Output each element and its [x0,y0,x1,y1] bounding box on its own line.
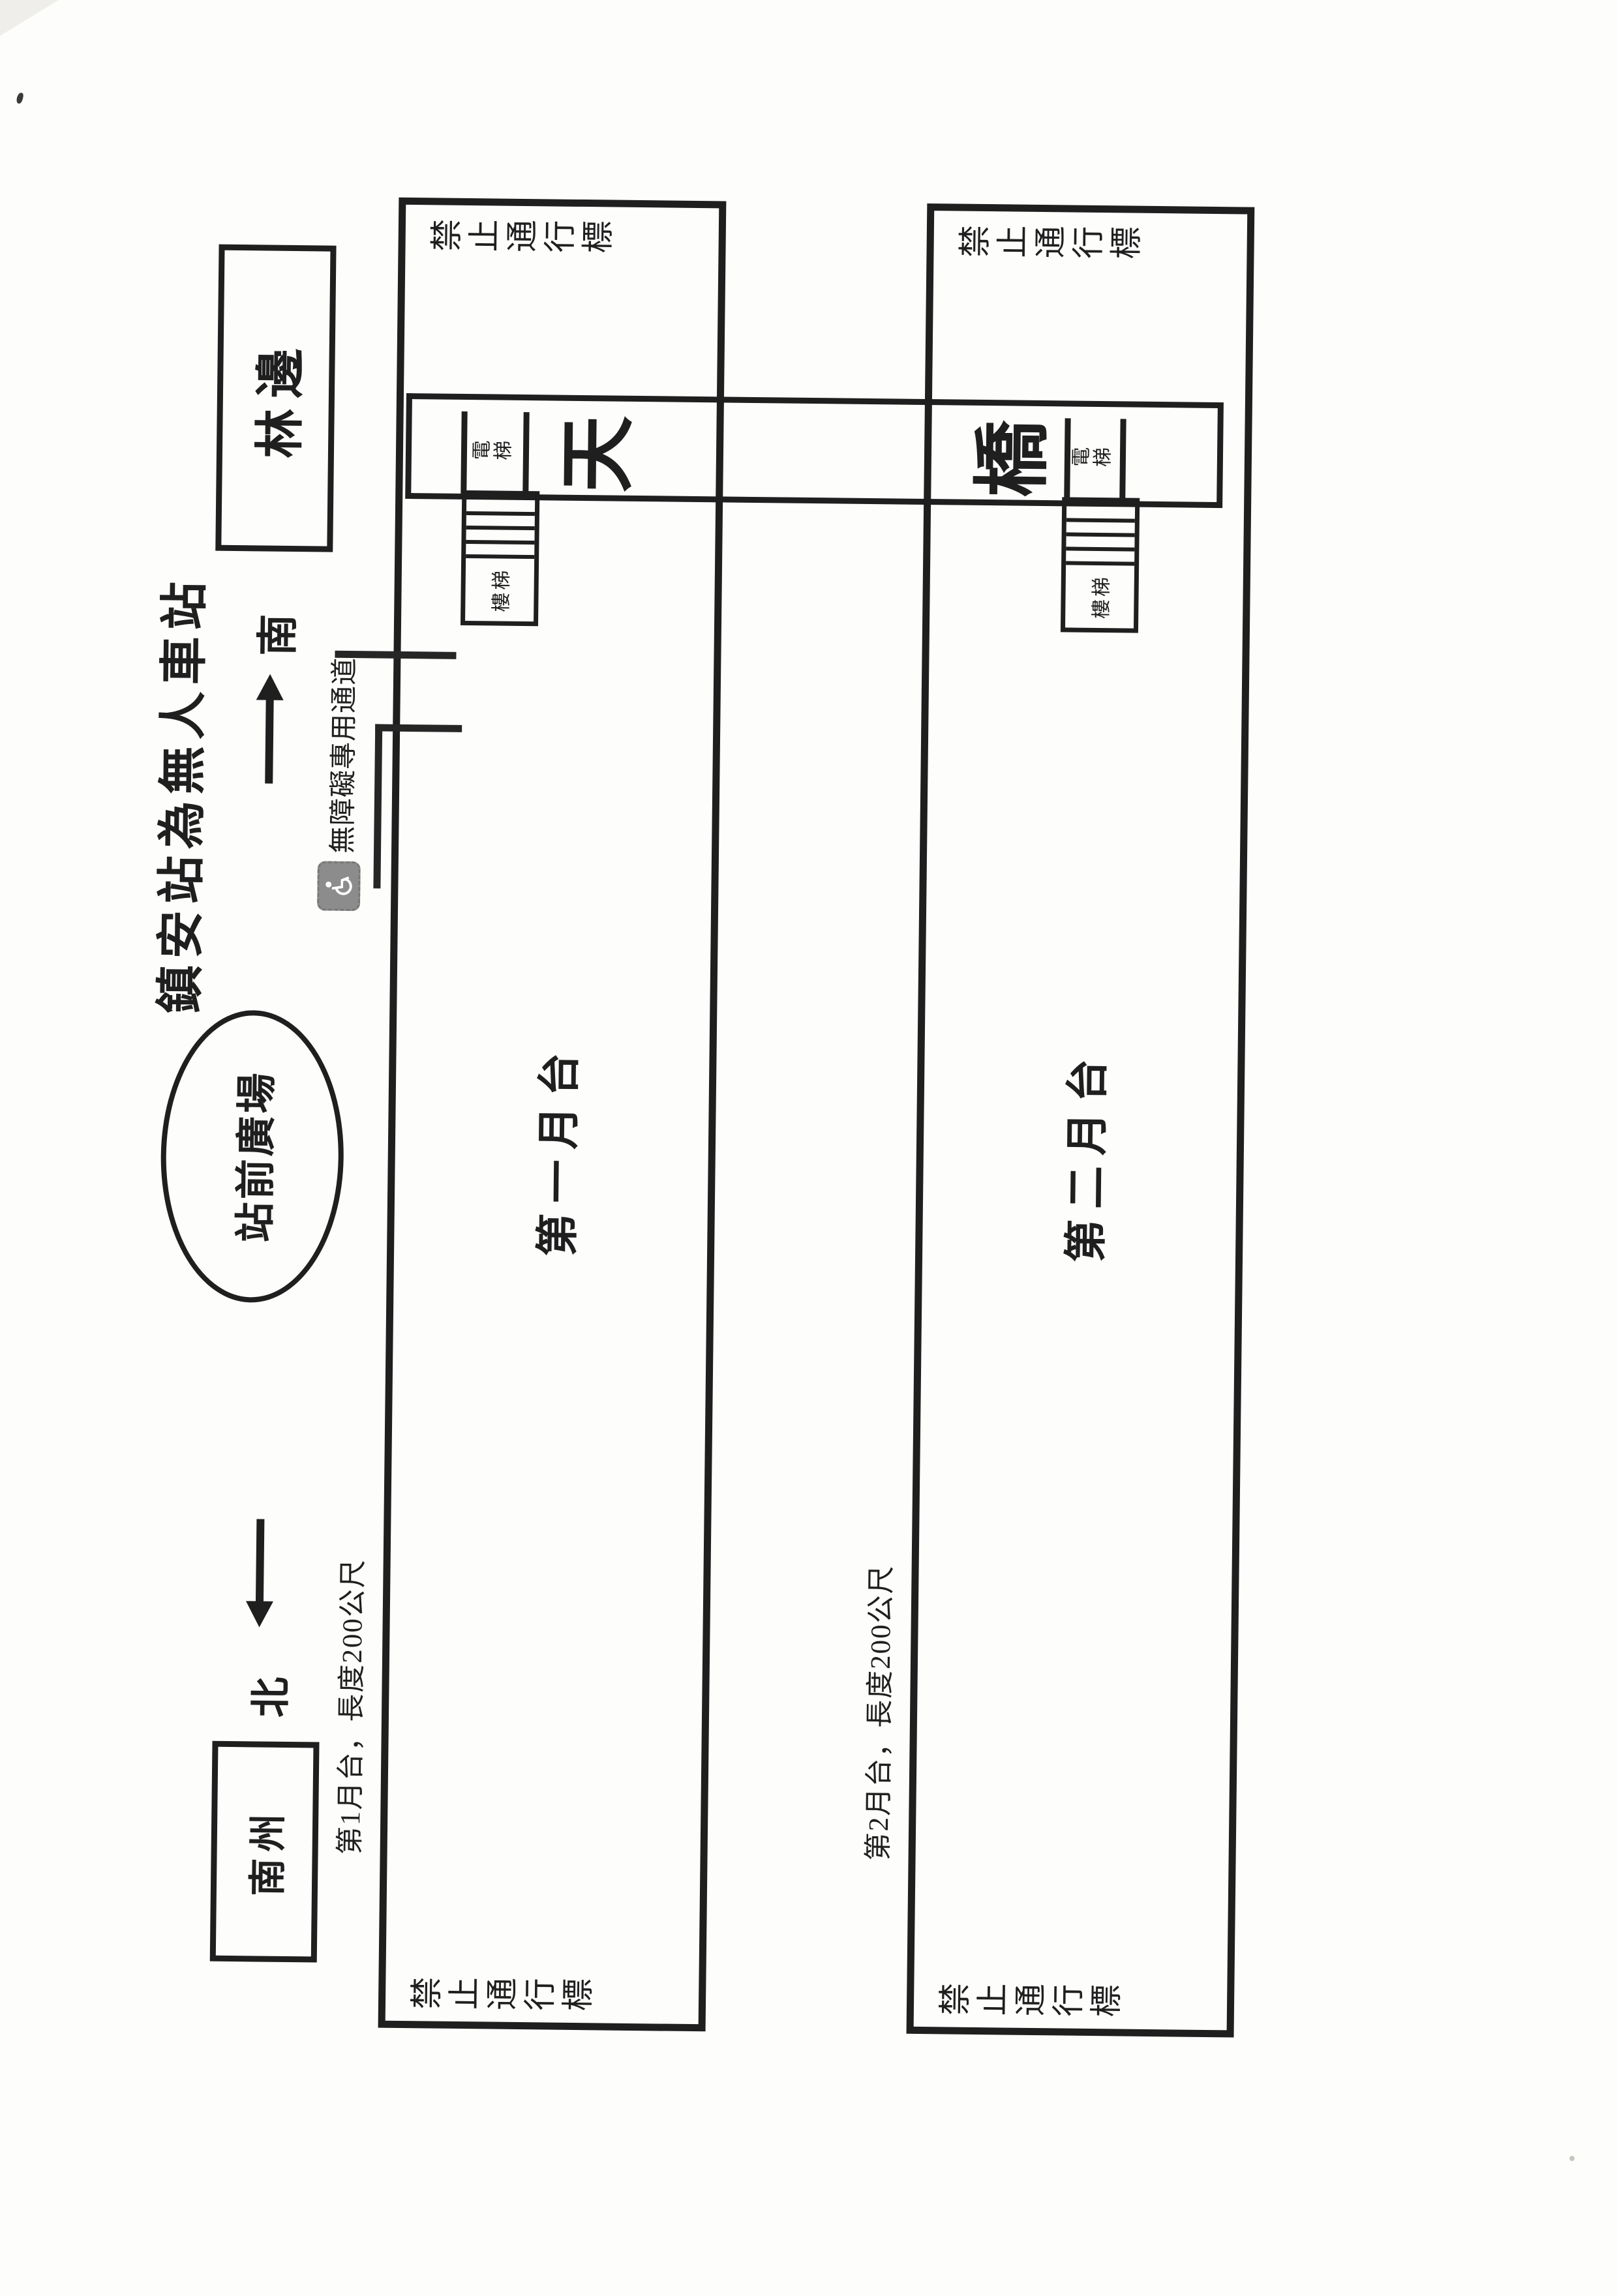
stairs-box-platform-2: 樓梯 [1061,497,1140,633]
station-plaza-ellipse: 站前廣場 [159,1009,345,1304]
stairs-step-line [466,511,535,516]
north-arrow-icon [0,0,13,2278]
footbridge-divider-2 [522,412,529,494]
stairs-step-line [1066,518,1135,522]
nanzhou-station-box: 南州 [210,1741,320,1963]
elevator-box-platform-1: 電梯 [464,411,521,494]
stairs-step-line [1066,532,1135,537]
elevator-label-platform-2: 電梯 [1070,445,1113,474]
stairs-step-line [466,540,534,544]
platform-1-no-entry-right: 禁止通行標 [429,214,631,263]
wheelchair-glyph [323,871,355,902]
elevator-label-platform-1: 電梯 [471,438,514,468]
footbridge-char-bridge: 橋 [974,417,1053,500]
platform-2-no-entry-left: 禁止通行標 [937,1978,1140,2027]
page-title: 鎮安站為無人車站 [141,574,216,1013]
elevator-box-platform-2: 電梯 [1065,418,1118,501]
compass-south-label: 南 [244,614,305,656]
linbian-station-box: 林邊 [215,245,336,552]
south-arrow-icon [0,0,13,2278]
wheelchair-icon [317,861,361,911]
station-plaza-label: 站前廣場 [222,1070,282,1243]
station-diagram-sheet: 鎮安站為無人車站 站前廣場 林邊 南州 北 南 禁止通行標 禁止通行標 第一月台… [0,0,1617,2287]
platform-1-name-text: 第一月台 [522,1042,588,1257]
platform-1-length-note: 第1月台，長度200公尺 [327,1558,371,1855]
accessible-path-line-inner-vertical [375,724,462,732]
stairs-step-line [1066,546,1134,551]
compass-north-label: 北 [237,1677,297,1718]
platform-2-name: 第二月台 [1053,1028,1114,1283]
footbridge-divider-4 [1119,419,1126,501]
south-arrow-shaft [265,698,273,784]
stairs-step-line [466,526,535,530]
accessible-path-line-inner-horizontal [373,724,382,888]
nanzhou-station-label: 南州 [237,1807,293,1896]
platform-2-length-note: 第2月台，長度200公尺 [856,1564,899,1861]
accessible-passage-label: 無障礙專用通道 [320,657,362,854]
platform-1-name: 第一月台 [524,1022,586,1277]
stairs-box-platform-1: 樓梯 [461,490,539,626]
stairs-step-line [466,554,534,559]
stairs-step-line [1066,561,1134,565]
platform-2-no-entry-right: 禁止通行標 [957,220,1160,270]
scan-speck-bottom [1569,2156,1575,2161]
footbridge-char-sky: 天 [559,413,638,496]
south-arrow-head [256,674,284,700]
platform-1-no-entry-left: 禁止通行標 [409,1972,612,2021]
north-arrow-shaft [256,1519,264,1605]
stairs-label-platform-2: 樓梯 [1085,574,1114,619]
platform-2-name-text: 第二月台 [1051,1048,1116,1262]
linbian-station-label: 林邊 [239,338,312,458]
scan-tilt-layer: 鎮安站為無人車站 站前廣場 林邊 南州 北 南 禁止通行標 禁止通行標 第一月台… [0,0,1617,2296]
stairs-label-platform-1: 樓梯 [485,567,514,612]
